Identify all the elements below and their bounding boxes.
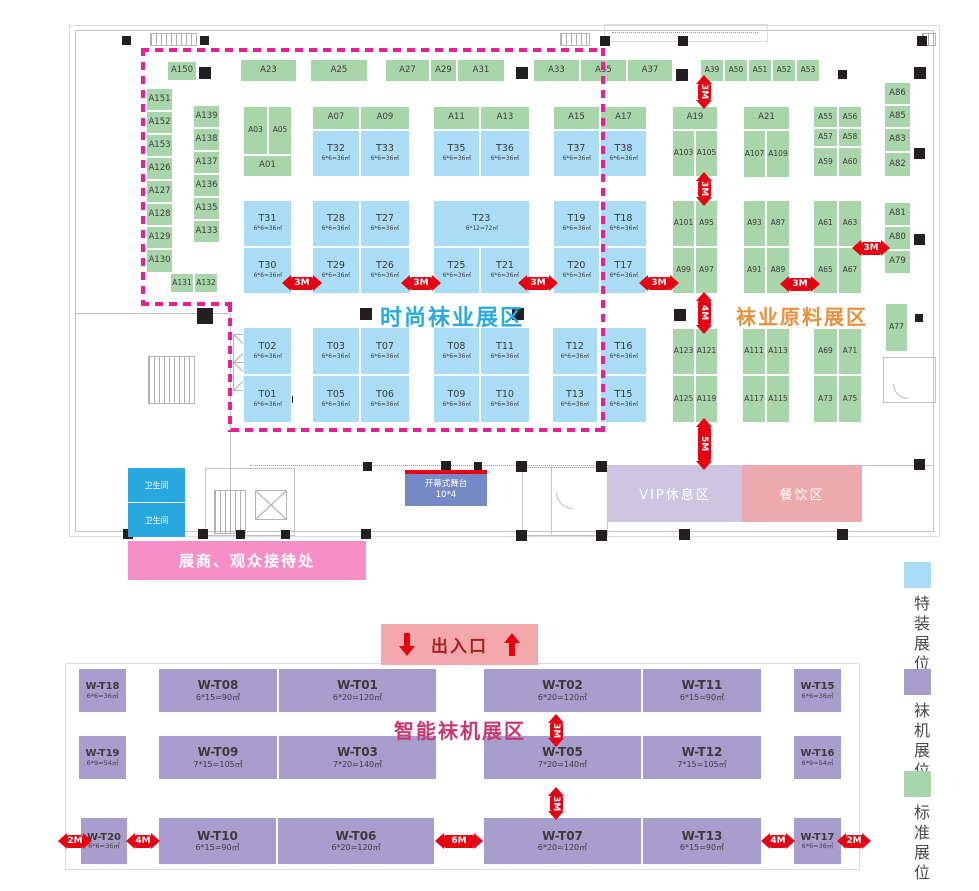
restroom-label: 卫生间 <box>145 480 169 491</box>
column-marker <box>679 529 690 540</box>
booth-id: T10 <box>496 390 514 401</box>
reception-area: 展商、观众接待处 <box>128 541 366 580</box>
booth-A82: A82 <box>884 152 911 177</box>
booth-id: A31 <box>473 66 490 76</box>
booth-A139: A139 <box>193 105 220 128</box>
booth-id: T15 <box>615 390 633 401</box>
dining-area: 餐饮区 <box>742 465 862 522</box>
booth-T36: T366*6=36㎡ <box>480 130 530 177</box>
booth-A115: A115 <box>766 375 790 423</box>
zone-boundary <box>228 304 232 432</box>
booth-size: 6*6=36㎡ <box>253 401 282 408</box>
booth-A130: A130 <box>146 249 173 273</box>
booth-size: 6*6=36㎡ <box>562 273 591 280</box>
booth-size: 6*6=36㎡ <box>371 226 400 233</box>
booth-A56: A56 <box>838 106 862 128</box>
booth-W-T19: W-T196*9=54㎡ <box>78 735 127 780</box>
column-marker <box>236 530 245 539</box>
booth-id: A81 <box>889 209 906 219</box>
booth-id: A93 <box>747 219 762 228</box>
zone-boundary <box>141 48 145 306</box>
legend-swatch-machine <box>904 669 931 695</box>
booth-id: A11 <box>448 113 465 123</box>
booth-A33: A33 <box>533 59 580 82</box>
booth-T01: T016*6=36㎡ <box>243 375 292 423</box>
column-marker <box>474 462 482 470</box>
booth-id: A61 <box>818 219 833 228</box>
column-marker <box>676 69 688 81</box>
booth-id: A19 <box>687 113 704 123</box>
booth-T15: T156*6=36㎡ <box>600 375 647 423</box>
booth-T18: T186*6=36㎡ <box>600 200 647 247</box>
stage-label: 开幕式舞台 <box>425 479 468 490</box>
booth-A11: A11 <box>433 106 480 130</box>
column-marker <box>281 530 290 539</box>
column-marker <box>914 459 925 470</box>
booth-T03: T036*6=36㎡ <box>312 327 360 375</box>
booth-size: 6*6=36㎡ <box>609 156 638 163</box>
booth-A61: A61 <box>813 200 838 247</box>
booth-id: A127 <box>148 187 170 197</box>
booth-id: A132 <box>196 279 215 288</box>
booth-A01: A01 <box>243 155 292 177</box>
booth-T27: T276*6=36㎡ <box>360 200 410 247</box>
booth-id: A65 <box>818 266 833 275</box>
vip-label: VIP休息区 <box>639 484 711 503</box>
booth-id: A71 <box>843 347 858 356</box>
booth-A150: A150 <box>167 61 197 81</box>
booth-id: A69 <box>818 347 833 356</box>
booth-A111: A111 <box>742 328 766 375</box>
booth-size: 7*15=105㎡ <box>677 760 726 769</box>
booth-T05: T056*6=36㎡ <box>312 375 360 423</box>
booth-size: 6*6=36㎡ <box>442 273 471 280</box>
booth-id: A137 <box>195 158 217 168</box>
booth-size: 6*20=120㎡ <box>333 693 382 702</box>
booth-T23: T236*12=72㎡ <box>433 200 530 247</box>
zone-boundary <box>231 428 605 432</box>
booth-id: A17 <box>615 113 632 123</box>
aisle-arrow-4m: 4M <box>126 833 158 849</box>
booth-T10: T106*6=36㎡ <box>480 375 530 423</box>
booth-id: W-T01 <box>337 679 378 693</box>
booth-id: A125 <box>674 395 693 404</box>
column-marker <box>838 70 847 79</box>
booth-T19: T196*6=36㎡ <box>553 200 600 247</box>
booth-id: T09 <box>448 390 466 401</box>
aisle-arrow-3m: 3M <box>548 714 564 746</box>
booth-size: 7*20=140㎡ <box>333 760 382 769</box>
material-zone-title: 袜业原料展区 <box>736 301 868 330</box>
booth-size: 7*15=105㎡ <box>193 760 242 769</box>
booth-id: W-T12 <box>682 746 723 760</box>
booth-T31: T316*6=36㎡ <box>243 200 292 247</box>
booth-A137: A137 <box>193 151 220 174</box>
booth-size: 6*9=54㎡ <box>802 760 834 767</box>
booth-A31: A31 <box>457 59 505 82</box>
booth-size: 6*6=36㎡ <box>253 353 282 360</box>
booth-A07: A07 <box>312 106 360 130</box>
booth-A53: A53 <box>796 59 820 82</box>
exit-arrow-icon <box>399 633 415 656</box>
booth-id: A87 <box>771 219 786 228</box>
booth-id: A01 <box>259 161 276 171</box>
booth-A29: A29 <box>430 59 457 82</box>
booth-size: 6*6=36㎡ <box>562 226 591 233</box>
aisle-arrow-3m: 3M <box>401 275 441 291</box>
booth-id: A133 <box>195 227 217 237</box>
canopy-line <box>612 32 758 33</box>
booth-id: W-T05 <box>542 746 583 760</box>
aisle-arrow-3m: 3M <box>282 275 322 291</box>
booth-size: 6*6=36㎡ <box>87 693 119 700</box>
booth-A107: A107 <box>743 130 766 178</box>
column-marker <box>516 461 527 472</box>
booth-id: A59 <box>818 158 833 167</box>
booth-id: A33 <box>548 66 565 76</box>
booth-T33: T336*6=36㎡ <box>360 130 410 177</box>
booth-id: T11 <box>496 342 514 353</box>
booth-A50: A50 <box>724 59 748 82</box>
aisle-arrow-3m: 3M <box>548 787 564 819</box>
booth-id: T12 <box>566 342 584 353</box>
booth-id: A57 <box>818 133 833 142</box>
aisle-arrow-3m: 3M <box>696 172 712 206</box>
booth-A128: A128 <box>146 203 173 226</box>
booth-W-T16: W-T166*9=54㎡ <box>793 735 842 780</box>
booth-T08: T086*6=36㎡ <box>433 327 480 375</box>
booth-A27: A27 <box>385 59 430 82</box>
booth-size: 6*12=72㎡ <box>465 226 497 233</box>
booth-id: A123 <box>674 347 693 356</box>
booth-size: 6*20=120㎡ <box>538 693 587 702</box>
booth-A57: A57 <box>813 128 838 147</box>
booth-size: 6*15=90㎡ <box>680 843 724 852</box>
booth-A121: A121 <box>695 328 718 375</box>
restroom-block-2: 卫生间 <box>128 503 185 537</box>
booth-id: A117 <box>744 395 763 404</box>
booth-id: A50 <box>729 66 744 75</box>
booth-A69: A69 <box>813 328 838 375</box>
booth-id: T05 <box>327 390 345 401</box>
entrance-block: 出入口 <box>381 624 538 665</box>
wall-hatch <box>150 33 197 46</box>
booth-id: A119 <box>697 395 716 404</box>
booth-A09: A09 <box>360 106 410 130</box>
booth-A127: A127 <box>146 180 173 203</box>
booth-size: 6*6=36㎡ <box>491 156 520 163</box>
booth-id: W-T02 <box>542 679 583 693</box>
booth-id: A60 <box>843 158 858 167</box>
booth-id: A151 <box>148 95 170 105</box>
aisle-arrow-2m: 2M <box>837 833 863 849</box>
booth-A55: A55 <box>813 106 838 128</box>
booth-A86: A86 <box>884 82 911 105</box>
booth-W-T18: W-T186*6=36㎡ <box>78 668 127 713</box>
booth-A126: A126 <box>146 157 173 180</box>
booth-A75: A75 <box>838 375 862 423</box>
booth-size: 6*6=36㎡ <box>371 401 400 408</box>
booth-id: A03 <box>248 126 263 135</box>
booth-size: 6*6=36㎡ <box>322 156 351 163</box>
aisle-arrow-2m: 2M <box>58 833 84 849</box>
booth-id: A27 <box>399 66 416 76</box>
booth-A25: A25 <box>310 59 368 82</box>
booth-W-T07: W-T076*20=120㎡ <box>483 817 642 865</box>
column-marker <box>600 36 610 46</box>
booth-id: T13 <box>566 390 584 401</box>
restroom-block-1: 卫生间 <box>128 468 185 502</box>
booth-id: A103 <box>674 149 693 158</box>
booth-id: A82 <box>889 160 906 170</box>
booth-A52: A52 <box>772 59 796 82</box>
booth-id: A99 <box>676 266 691 275</box>
booth-A15: A15 <box>553 106 600 130</box>
booth-id: A135 <box>195 204 217 214</box>
aisle-arrow-3m: 3M <box>780 276 820 292</box>
booth-id: A75 <box>843 395 858 404</box>
booth-id: A73 <box>818 395 833 404</box>
booth-id: A56 <box>843 113 858 122</box>
booth-id: W-T11 <box>682 679 723 693</box>
booth-size: 6*6=36㎡ <box>609 226 638 233</box>
booth-id: A91 <box>747 266 762 275</box>
booth-id: T06 <box>376 390 394 401</box>
stage-size: 10*4 <box>436 490 456 501</box>
booth-T32: T326*6=36㎡ <box>312 130 360 177</box>
aisle-arrow-3m: 3M <box>696 75 712 109</box>
booth-size: 6*6=36㎡ <box>371 273 400 280</box>
booth-id: A86 <box>889 89 906 99</box>
booth-id: W-T18 <box>86 681 120 693</box>
booth-id: W-T06 <box>336 830 377 844</box>
booth-id: T16 <box>615 342 633 353</box>
booth-id: A85 <box>889 112 906 122</box>
booth-id: T01 <box>259 390 277 401</box>
booth-id: A09 <box>377 113 394 123</box>
column-marker <box>674 309 686 321</box>
booth-id: A05 <box>273 126 288 135</box>
booth-A153: A153 <box>146 134 173 157</box>
legend-label-special: 特装展位 <box>908 595 932 675</box>
zone-boundary <box>141 48 605 52</box>
booth-A37: A37 <box>627 59 673 82</box>
booth-A71: A71 <box>838 328 862 375</box>
aisle-arrow-6m: 6M <box>435 833 483 849</box>
restroom-label: 卫生间 <box>145 515 169 526</box>
column-marker <box>516 67 528 79</box>
aisle-arrow-3m: 3M <box>518 275 558 291</box>
booth-size: 6*6=36㎡ <box>491 401 520 408</box>
booth-A101: A101 <box>672 200 695 247</box>
booth-W-T11: W-T116*15=90㎡ <box>642 668 762 713</box>
stairs <box>214 490 246 534</box>
booth-id: T03 <box>327 342 345 353</box>
zone-boundary <box>141 302 232 306</box>
side-room <box>883 357 936 403</box>
booth-size: 6*6=36㎡ <box>322 353 351 360</box>
booth-T07: T076*6=36㎡ <box>360 327 410 375</box>
booth-size: 6*6=36㎡ <box>322 226 351 233</box>
dining-label: 餐饮区 <box>779 484 824 503</box>
booth-size: 6*6=36㎡ <box>802 693 834 700</box>
booth-A03: A03 <box>243 106 268 155</box>
booth-W-T02: W-T026*20=120㎡ <box>483 668 642 713</box>
entrance-label: 出入口 <box>431 632 488 657</box>
booth-id: W-T10 <box>197 830 238 844</box>
booth-T09: T096*6=36㎡ <box>433 375 480 423</box>
booth-size: 6*6=36㎡ <box>802 843 834 850</box>
booth-size: 6*20=120㎡ <box>331 843 380 852</box>
booth-A97: A97 <box>695 247 718 294</box>
booth-id: A63 <box>843 219 858 228</box>
elevator <box>255 490 287 520</box>
booth-A85: A85 <box>884 105 911 128</box>
booth-id: W-T03 <box>337 746 378 760</box>
booth-id: T07 <box>376 342 394 353</box>
column-marker <box>516 530 527 541</box>
booth-id: W-T13 <box>682 830 723 844</box>
booth-id: A136 <box>195 181 217 191</box>
booth-W-T01: W-T016*20=120㎡ <box>278 668 437 713</box>
booth-id: A111 <box>744 347 763 356</box>
column-marker <box>914 148 925 159</box>
booth-A105: A105 <box>695 130 718 177</box>
booth-size: 6*6=36㎡ <box>371 353 400 360</box>
booth-W-T17: W-T176*6=36㎡ <box>793 817 842 865</box>
booth-A131: A131 <box>170 273 194 293</box>
reception-label: 展商、观众接待处 <box>179 550 315 571</box>
booth-T11: T116*6=36㎡ <box>480 327 530 375</box>
booth-id: A83 <box>889 135 906 145</box>
booth-A136: A136 <box>193 174 220 197</box>
booth-size: 6*15=90㎡ <box>680 693 724 702</box>
fashion-zone-title: 时尚袜业展区 <box>380 300 524 332</box>
booth-size: 7*20=140㎡ <box>538 760 587 769</box>
zone-boundary <box>601 48 605 432</box>
booth-size: 6*20=120㎡ <box>538 843 587 852</box>
booth-id: A113 <box>768 347 787 356</box>
column-marker <box>198 529 208 539</box>
booth-W-T10: W-T106*15=90㎡ <box>158 817 277 865</box>
column-marker <box>596 461 607 472</box>
booth-A152: A152 <box>146 111 173 134</box>
booth-id: W-T15 <box>801 681 835 693</box>
booth-id: A89 <box>771 266 786 275</box>
booth-A125: A125 <box>672 375 695 423</box>
booth-size: 6*6=36㎡ <box>371 156 400 163</box>
column-marker <box>122 36 131 45</box>
booth-A103: A103 <box>672 130 695 177</box>
aisle-arrow-4m: 4M <box>696 292 712 334</box>
column-marker <box>678 36 688 46</box>
booth-size: 6*6=36㎡ <box>442 156 471 163</box>
booth-T06: T066*6=36㎡ <box>360 375 410 423</box>
booth-A21: A21 <box>743 106 790 130</box>
booth-A132: A132 <box>194 273 218 293</box>
aisle-arrow-3m: 3M <box>639 275 679 291</box>
booth-id: A128 <box>148 210 170 220</box>
booth-id: A138 <box>195 135 217 145</box>
column-marker <box>363 462 372 471</box>
enter-arrow-icon <box>504 633 520 656</box>
booth-id: A131 <box>172 279 191 288</box>
aisle-arrow-4m: 4M <box>761 833 793 849</box>
booth-W-T06: W-T066*20=120㎡ <box>277 817 435 865</box>
booth-A138: A138 <box>193 128 220 151</box>
booth-A58: A58 <box>838 128 862 147</box>
booth-id: T02 <box>259 342 277 353</box>
booth-A77: A77 <box>885 303 908 352</box>
booth-T16: T166*6=36㎡ <box>600 327 647 375</box>
column-marker <box>596 530 607 541</box>
booth-T20: T206*6=36㎡ <box>553 247 600 294</box>
booth-id: A107 <box>745 150 764 159</box>
booth-id: A121 <box>697 347 716 356</box>
booth-size: 6*6=36㎡ <box>491 273 520 280</box>
booth-A59: A59 <box>813 147 838 177</box>
booth-id: W-T16 <box>801 748 835 760</box>
booth-id: W-T19 <box>86 748 120 760</box>
stairs <box>148 356 195 404</box>
booth-T35: T356*6=36㎡ <box>433 130 480 177</box>
booth-id: A129 <box>148 233 170 243</box>
booth-A51: A51 <box>748 59 772 82</box>
booth-id: A51 <box>753 66 768 75</box>
booth-size: 6*15=90㎡ <box>195 843 239 852</box>
booth-id: A25 <box>331 66 348 76</box>
legend-swatch-special <box>904 562 931 588</box>
legend-label-standard: 标准展位 <box>908 804 932 884</box>
booth-size: 6*6=36㎡ <box>442 401 471 408</box>
booth-size: 6*6=36㎡ <box>322 273 351 280</box>
booth-id: A13 <box>497 113 514 123</box>
grid-line <box>250 465 610 466</box>
booth-id: A97 <box>699 266 714 275</box>
booth-id: A95 <box>699 219 714 228</box>
booth-A117: A117 <box>742 375 766 423</box>
booth-size: 6*6=36㎡ <box>609 401 638 408</box>
booth-T38: T386*6=36㎡ <box>600 130 647 177</box>
booth-A119: A119 <box>695 375 718 423</box>
column-marker <box>917 36 927 46</box>
booth-A113: A113 <box>766 328 790 375</box>
booth-size: 6*15=90㎡ <box>196 693 240 702</box>
booth-T37: T376*6=36㎡ <box>553 130 600 177</box>
booth-A95: A95 <box>695 200 718 247</box>
booth-A151: A151 <box>146 88 173 111</box>
legend-label-machine: 袜机展位 <box>908 702 932 782</box>
booth-A93: A93 <box>743 200 766 247</box>
column-marker <box>914 67 926 79</box>
booth-T12: T126*6=36㎡ <box>552 327 598 375</box>
booth-A73: A73 <box>813 375 838 423</box>
booth-A05: A05 <box>268 106 292 155</box>
booth-id: A52 <box>777 66 792 75</box>
booth-T28: T286*6=36㎡ <box>312 200 360 247</box>
booth-W-T08: W-T086*15=90㎡ <box>158 668 278 713</box>
booth-size: 6*6=36㎡ <box>609 273 638 280</box>
booth-id: A77 <box>889 323 904 332</box>
booth-A129: A129 <box>146 226 173 249</box>
booth-size: 6*6=36㎡ <box>322 401 351 408</box>
booth-A17: A17 <box>600 106 647 130</box>
booth-size: 6*6=36㎡ <box>88 843 120 850</box>
column-marker <box>200 36 209 45</box>
aisle-arrow-5m: 5M <box>696 418 712 470</box>
booth-size: 6*6=36㎡ <box>561 353 590 360</box>
booth-id: A53 <box>801 66 816 75</box>
